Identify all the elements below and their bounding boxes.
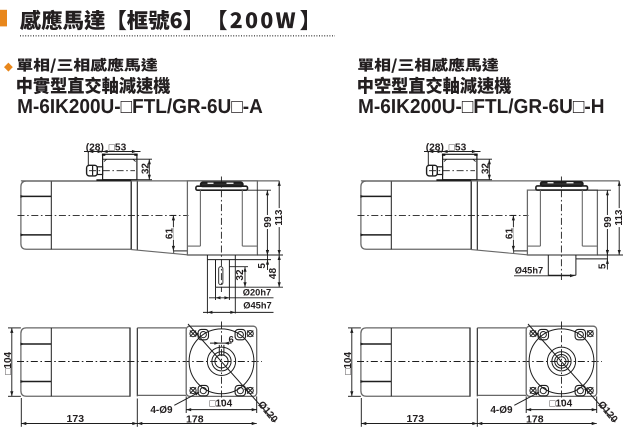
svg-text:4-Ø9: 4-Ø9 <box>150 405 173 416</box>
svg-text:99: 99 <box>263 216 274 228</box>
svg-text:32: 32 <box>481 163 492 175</box>
svg-text:99: 99 <box>603 216 614 228</box>
svg-text:48: 48 <box>268 268 279 280</box>
svg-text:61: 61 <box>165 228 176 240</box>
svg-text:(28): (28) <box>86 142 104 153</box>
svg-text:Ø45h7: Ø45h7 <box>243 301 271 311</box>
svg-text:□104: □104 <box>549 399 572 410</box>
svg-text:113: 113 <box>274 209 285 226</box>
svg-text:113: 113 <box>614 209 625 226</box>
svg-text:173: 173 <box>407 413 425 425</box>
svg-text:Ø45h7: Ø45h7 <box>515 266 543 276</box>
svg-text:5: 5 <box>598 263 609 269</box>
svg-text:178: 178 <box>526 413 544 425</box>
svg-text:178: 178 <box>186 413 204 425</box>
svg-text:□104: □104 <box>209 399 232 410</box>
svg-text:6: 6 <box>229 334 234 345</box>
svg-text:□53: □53 <box>109 142 127 153</box>
svg-text:32: 32 <box>235 269 246 281</box>
svg-text:173: 173 <box>67 413 85 425</box>
svg-text:Ø20h7: Ø20h7 <box>243 287 271 297</box>
svg-text:(28): (28) <box>426 142 444 153</box>
svg-text:□53: □53 <box>449 142 467 153</box>
svg-text:61: 61 <box>505 228 516 240</box>
svg-text:4-Ø9: 4-Ø9 <box>490 405 513 416</box>
svg-text:32: 32 <box>141 163 152 175</box>
svg-text:5: 5 <box>257 263 268 269</box>
svg-text:□104: □104 <box>343 352 354 375</box>
svg-text:□104: □104 <box>3 352 14 375</box>
